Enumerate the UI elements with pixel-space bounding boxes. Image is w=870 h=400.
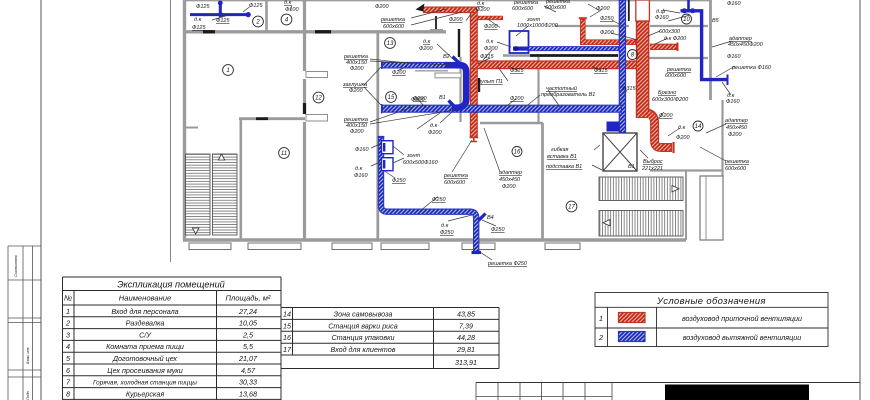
svg-text:Ф200: Ф200 xyxy=(502,184,516,190)
svg-text:Ф200: Ф200 xyxy=(659,113,673,119)
svg-text:Ф200: Ф200 xyxy=(484,24,498,30)
svg-text:Ф125: Ф125 xyxy=(216,18,230,24)
svg-text:Ф200: Ф200 xyxy=(349,88,363,94)
svg-text:В2: В2 xyxy=(443,54,450,60)
svg-text:600x300/Ф200: 600x300/Ф200 xyxy=(652,97,689,103)
svg-text:Ф250: Ф250 xyxy=(600,16,614,22)
svg-text:221x221: 221x221 xyxy=(641,166,663,172)
svg-text:Зона самовывоза: Зона самовывоза xyxy=(334,309,393,318)
svg-text:Ф200: Ф200 xyxy=(413,96,427,102)
svg-text:д.к: д.к xyxy=(486,39,494,45)
svg-text:Доготовочный цех: Доготовочный цех xyxy=(112,354,177,363)
svg-text:д.к: д.к xyxy=(423,39,431,45)
svg-text:600x600: 600x600 xyxy=(665,73,687,79)
svg-text:Ф100: Ф100 xyxy=(285,7,299,13)
svg-text:частотный: частотный xyxy=(546,85,577,92)
svg-text:Ф200: Ф200 xyxy=(600,30,614,36)
svg-text:Курьерская: Курьерская xyxy=(126,389,165,398)
svg-text:Ф160: Ф160 xyxy=(727,54,741,60)
svg-text:600x600: 600x600 xyxy=(725,166,747,172)
svg-text:4: 4 xyxy=(66,342,70,351)
svg-text:д.к: д.к xyxy=(355,166,363,172)
svg-text:7,39: 7,39 xyxy=(459,321,473,330)
svg-text:Горячая, холодная станция пицц: Горячая, холодная станция пиццы xyxy=(93,379,197,387)
svg-text:Ф160: Ф160 xyxy=(354,173,368,179)
svg-text:16: 16 xyxy=(514,150,521,156)
svg-text:313,91: 313,91 xyxy=(455,358,477,367)
svg-text:Ф200: Ф200 xyxy=(350,129,364,135)
svg-text:Согласовано: Согласовано xyxy=(14,255,18,277)
svg-text:15: 15 xyxy=(388,95,395,101)
svg-text:Ф200: Ф200 xyxy=(484,46,498,52)
svg-text:5,5: 5,5 xyxy=(243,342,254,351)
svg-text:1: 1 xyxy=(66,307,70,316)
svg-text:подставка В1: подставка В1 xyxy=(546,164,582,170)
svg-text:43,85: 43,85 xyxy=(457,309,476,318)
svg-text:600x600: 600x600 xyxy=(444,180,466,186)
svg-text:600x600: 600x600 xyxy=(512,6,534,12)
svg-text:Подп.: Подп. xyxy=(26,390,30,400)
svg-text:10: 10 xyxy=(683,17,690,23)
svg-text:11: 11 xyxy=(281,151,287,157)
svg-text:2: 2 xyxy=(255,20,260,26)
svg-text:адаптер: адаптер xyxy=(725,118,748,124)
svg-text:16: 16 xyxy=(283,333,291,342)
svg-text:13: 13 xyxy=(387,41,394,47)
svg-text:Брезно: Брезно xyxy=(658,90,676,96)
svg-text:В5: В5 xyxy=(712,18,720,24)
svg-text:воздуховод приточной вентиляци: воздуховод приточной вентиляции xyxy=(682,314,802,323)
svg-text:Ф160: Ф160 xyxy=(726,99,740,105)
svg-text:450x450: 450x450 xyxy=(499,177,521,183)
svg-text:Ф200: Ф200 xyxy=(449,17,463,23)
svg-text:В1: В1 xyxy=(628,164,635,170)
svg-text:Ф250: Ф250 xyxy=(440,230,454,236)
svg-text:Ф200: Ф200 xyxy=(392,70,406,76)
svg-text:пульт П1: пульт П1 xyxy=(478,79,503,85)
svg-text:вставка В1: вставка В1 xyxy=(547,154,577,160)
svg-text:1: 1 xyxy=(599,314,603,323)
svg-text:Ф315: Ф315 xyxy=(510,68,524,74)
svg-text:зонт: зонт xyxy=(406,153,421,159)
svg-text:600x600: 600x600 xyxy=(383,24,405,30)
svg-text:Ф200: Ф200 xyxy=(728,132,742,138)
svg-text:1000x1000Ф200: 1000x1000Ф200 xyxy=(517,23,559,29)
svg-text:В1: В1 xyxy=(439,95,446,101)
svg-text:Цех просеивания муки: Цех просеивания муки xyxy=(107,366,182,375)
svg-text:Ф200: Ф200 xyxy=(350,66,364,72)
svg-text:Выброс: Выброс xyxy=(643,159,663,165)
svg-text:Ф250: Ф250 xyxy=(432,197,446,203)
svg-text:13,68: 13,68 xyxy=(239,389,257,398)
svg-text:Ф160: Ф160 xyxy=(655,15,669,21)
svg-text:Вход для персонала: Вход для персонала xyxy=(111,307,178,316)
svg-text:3: 3 xyxy=(66,330,70,339)
svg-text:решетка: решетка xyxy=(724,159,749,165)
svg-text:600x600: 600x600 xyxy=(545,5,567,11)
svg-text:Наименование: Наименование xyxy=(119,294,171,303)
svg-text:решетка: решетка xyxy=(443,173,468,179)
svg-text:Экспликация помещений: Экспликация помещений xyxy=(117,280,225,290)
svg-text:д.к: д.к xyxy=(441,223,449,229)
svg-text:решетка: решетка xyxy=(380,17,405,23)
svg-text:1: 1 xyxy=(226,68,229,74)
svg-text:Ф125: Ф125 xyxy=(196,4,210,10)
svg-text:д.к: д.к xyxy=(284,0,292,6)
svg-text:Ф200: Ф200 xyxy=(428,130,442,136)
svg-text:Ф160: Ф160 xyxy=(727,1,741,7)
svg-text:д.к Ф200: д.к Ф200 xyxy=(664,36,687,42)
svg-text:д.к: д.к xyxy=(430,123,438,129)
svg-text:2,5: 2,5 xyxy=(242,330,254,339)
svg-text:10,05: 10,05 xyxy=(239,319,258,328)
svg-text:Ф315: Ф315 xyxy=(622,86,636,92)
svg-text:30,33: 30,33 xyxy=(239,378,257,387)
svg-text:д.к: д.к xyxy=(194,17,202,23)
svg-text:Условные обозначения: Условные обозначения xyxy=(656,295,766,306)
svg-text:Ф315: Ф315 xyxy=(480,54,494,60)
svg-text:гибкая: гибкая xyxy=(551,147,569,153)
svg-text:27,24: 27,24 xyxy=(238,307,257,316)
svg-text:600x500Ф160: 600x500Ф160 xyxy=(403,160,439,166)
svg-text:29,81: 29,81 xyxy=(456,345,475,354)
svg-text:Ф200: Ф200 xyxy=(596,6,610,12)
svg-text:8: 8 xyxy=(66,389,70,398)
svg-text:2: 2 xyxy=(598,333,604,342)
svg-text:Ф200: Ф200 xyxy=(476,7,490,13)
svg-text:Комната приема пищи: Комната приема пищи xyxy=(106,342,184,351)
svg-text:Станция варки риса: Станция варки риса xyxy=(328,321,398,330)
svg-text:воздуховод вытяжной вентиляции: воздуховод вытяжной вентиляции xyxy=(683,333,802,342)
svg-text:44,28: 44,28 xyxy=(457,333,475,342)
svg-text:решетка Ф250: решетка Ф250 xyxy=(487,261,528,267)
svg-text:17: 17 xyxy=(283,345,292,354)
svg-text:Ф200: Ф200 xyxy=(676,135,690,141)
svg-text:Взам. инв.: Взам. инв. xyxy=(26,347,30,364)
svg-text:Ф125: Ф125 xyxy=(249,3,263,9)
svg-text:450x450: 450x450 xyxy=(726,125,748,131)
svg-text:Площадь, м²: Площадь, м² xyxy=(226,294,271,303)
svg-text:С/У: С/У xyxy=(139,330,152,339)
svg-text:№: № xyxy=(64,294,72,303)
svg-text:Ф200: Ф200 xyxy=(419,46,433,52)
svg-text:решетка Ф160: решетка Ф160 xyxy=(731,65,772,71)
svg-text:д.к: д.к xyxy=(678,125,686,131)
svg-text:Ф250: Ф250 xyxy=(392,178,406,184)
svg-text:21,07: 21,07 xyxy=(238,354,258,363)
svg-text:Ф160: Ф160 xyxy=(355,147,369,153)
svg-text:Ф315: Ф315 xyxy=(594,68,608,74)
svg-text:2: 2 xyxy=(65,319,70,328)
svg-text:Вход для клиентов: Вход для клиентов xyxy=(331,345,396,354)
svg-text:Ф125: Ф125 xyxy=(192,25,206,31)
svg-text:12: 12 xyxy=(315,96,322,102)
svg-text:600x300: 600x300 xyxy=(659,29,681,35)
svg-text:450x450Ф200: 450x450Ф200 xyxy=(728,42,764,48)
svg-text:Ф200: Ф200 xyxy=(375,4,389,10)
svg-text:14: 14 xyxy=(283,309,291,318)
svg-text:17: 17 xyxy=(568,205,575,211)
svg-text:Раздевалка: Раздевалка xyxy=(126,319,165,328)
svg-text:адаптер: адаптер xyxy=(499,170,522,176)
svg-text:В4: В4 xyxy=(487,215,494,221)
svg-text:6: 6 xyxy=(66,366,70,375)
svg-text:Ф250: Ф250 xyxy=(491,227,505,233)
svg-text:14: 14 xyxy=(695,124,702,130)
svg-text:преобразователь В1: преобразователь В1 xyxy=(541,92,595,98)
svg-text:4,57: 4,57 xyxy=(241,366,256,375)
svg-text:Ф200: Ф200 xyxy=(510,96,524,102)
svg-text:15: 15 xyxy=(283,321,292,330)
svg-text:Станция упаковки: Станция упаковки xyxy=(331,333,394,342)
